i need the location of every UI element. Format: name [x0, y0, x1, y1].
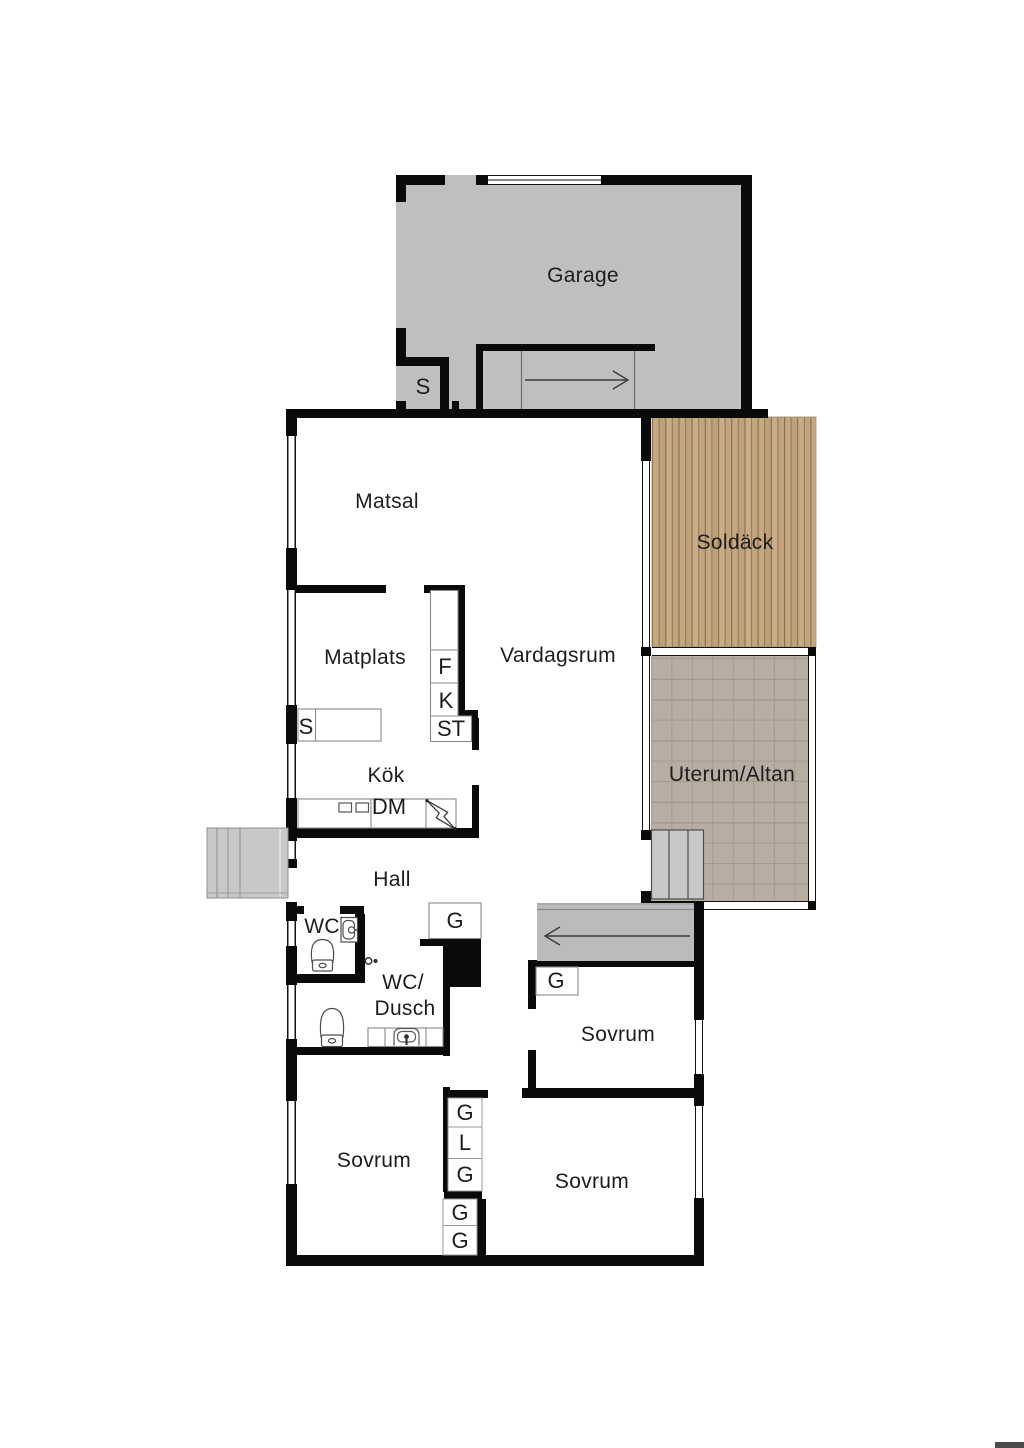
svg-text:Vardagsrum: Vardagsrum — [500, 644, 616, 667]
svg-text:Sovrum: Sovrum — [337, 1149, 411, 1172]
svg-text:G: G — [456, 1100, 473, 1125]
svg-text:Kök: Kök — [367, 764, 404, 787]
svg-text:ST: ST — [437, 716, 465, 741]
svg-text:Matplats: Matplats — [324, 646, 406, 669]
svg-text:WC/: WC/ — [382, 971, 424, 994]
svg-text:WC: WC — [304, 915, 340, 938]
svg-text:Dusch: Dusch — [374, 997, 435, 1020]
svg-text:Matsal: Matsal — [355, 490, 419, 513]
svg-text:Soldäck: Soldäck — [697, 531, 774, 554]
svg-text:G: G — [547, 968, 564, 993]
svg-text:L: L — [459, 1130, 471, 1155]
svg-text:Sovrum: Sovrum — [555, 1170, 629, 1193]
svg-text:G: G — [456, 1162, 473, 1187]
svg-text:Garage: Garage — [547, 264, 619, 287]
svg-text:Sovrum: Sovrum — [581, 1023, 655, 1046]
svg-text:Hall: Hall — [373, 868, 410, 891]
svg-text:G: G — [446, 908, 463, 933]
svg-text:K: K — [439, 688, 454, 713]
svg-text:G: G — [451, 1228, 468, 1253]
svg-text:DM: DM — [372, 794, 406, 819]
svg-text:S: S — [416, 374, 431, 399]
svg-text:Uterum/Altan: Uterum/Altan — [669, 763, 795, 786]
svg-text:G: G — [451, 1200, 468, 1225]
svg-text:F: F — [438, 654, 451, 679]
svg-text:S: S — [299, 714, 314, 739]
